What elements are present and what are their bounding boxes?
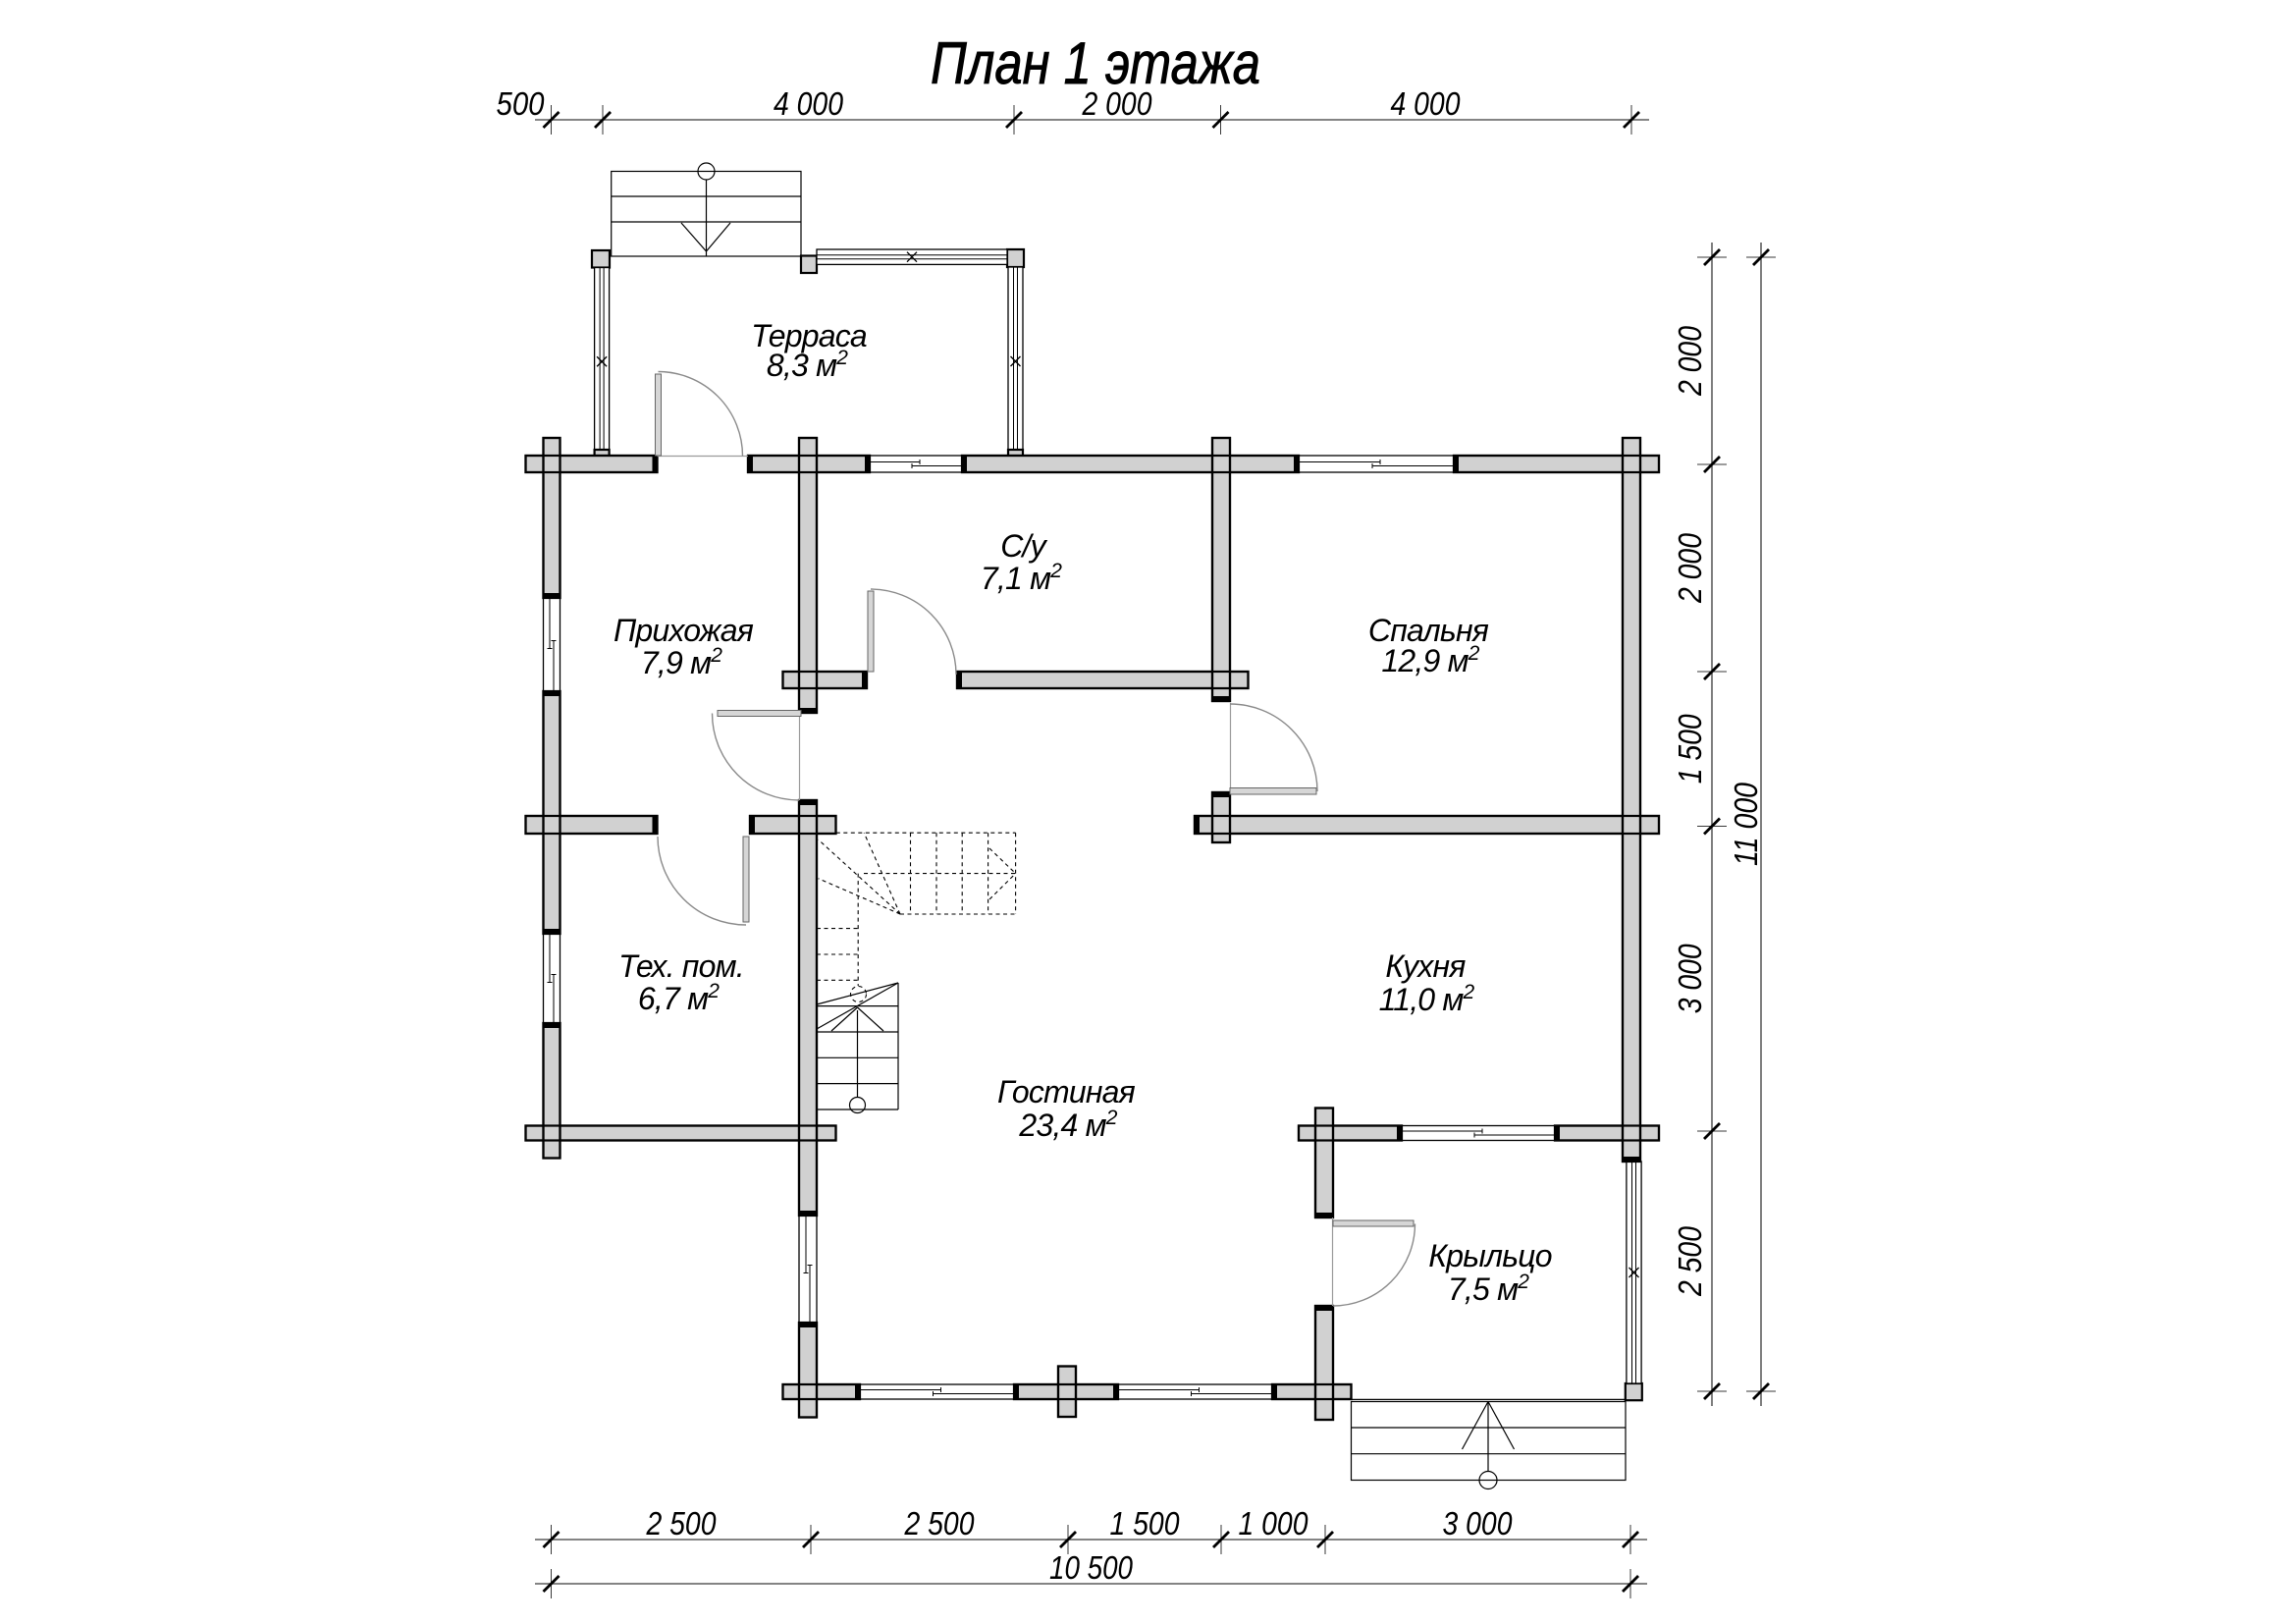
svg-text:2 500: 2 500 [1672, 1225, 1708, 1296]
svg-text:2 500: 2 500 [646, 1505, 717, 1542]
svg-text:7,5 м2: 7,5 м2 [1448, 1271, 1529, 1307]
svg-text:8,3 м2: 8,3 м2 [767, 347, 848, 383]
svg-text:11,0 м2: 11,0 м2 [1379, 981, 1475, 1017]
svg-text:2 000: 2 000 [1672, 325, 1708, 396]
svg-text:3 000: 3 000 [1443, 1505, 1514, 1542]
svg-text:1 000: 1 000 [1239, 1505, 1309, 1542]
svg-text:7,1 м2: 7,1 м2 [981, 560, 1062, 596]
svg-text:С/у: С/у [1000, 528, 1047, 564]
svg-text:500: 500 [497, 85, 546, 122]
svg-text:23,4 м2: 23,4 м2 [1018, 1107, 1117, 1143]
svg-text:2 000: 2 000 [1672, 532, 1708, 603]
svg-text:4 000: 4 000 [1391, 85, 1462, 122]
svg-text:Гостиная: Гостиная [997, 1074, 1136, 1109]
svg-text:3 000: 3 000 [1672, 944, 1708, 1014]
svg-text:7,9 м2: 7,9 м2 [641, 644, 722, 680]
svg-text:1 500: 1 500 [1672, 714, 1708, 784]
svg-text:4 000: 4 000 [774, 85, 844, 122]
svg-text:Прихожая: Прихожая [614, 613, 754, 648]
svg-text:6,7 м2: 6,7 м2 [638, 980, 720, 1016]
svg-text:Кухня: Кухня [1385, 948, 1466, 984]
svg-text:Тех. пом.: Тех. пом. [618, 948, 744, 984]
svg-text:2 500: 2 500 [904, 1505, 975, 1542]
svg-text:10 500: 10 500 [1049, 1549, 1134, 1586]
svg-text:12,9 м2: 12,9 м2 [1381, 642, 1479, 678]
svg-text:Крыльцо: Крыльцо [1428, 1238, 1552, 1273]
svg-text:1 500: 1 500 [1110, 1505, 1181, 1542]
svg-text:2 000: 2 000 [1082, 85, 1152, 122]
svg-text:11 000: 11 000 [1728, 782, 1764, 866]
